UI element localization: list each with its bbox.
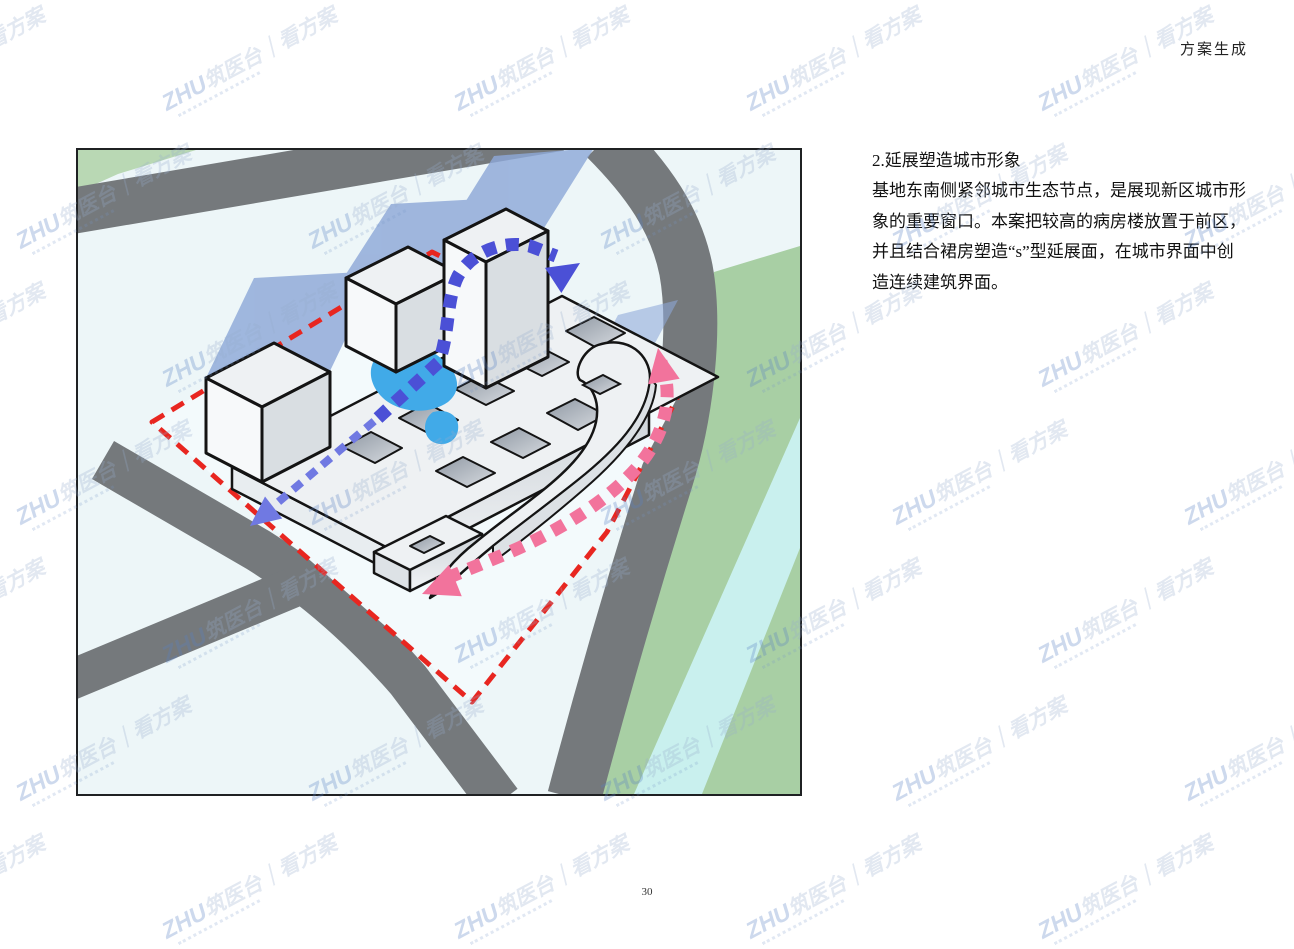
watermark: ZHU筑医台｜看方案 [158,0,367,121]
section-body: 基地东南侧紧邻城市生态节点，是展现新区城市形 象的重要窗口。本案把较高的病房楼放… [872,176,1257,298]
watermark: ZHU筑医台｜看方案 [1034,0,1243,121]
article-text-block: 2.延展塑造城市形象 基地东南侧紧邻城市生态节点，是展现新区城市形 象的重要窗口… [872,146,1257,298]
tower-right-tall [444,209,548,388]
site-diagram-svg [78,150,800,794]
watermark: ZHU筑医台｜看方案 [0,818,74,949]
watermark: ZHU筑医台｜看方案 [0,0,74,121]
watermark: ZHU筑医台｜看方案 [0,266,74,397]
watermark: ZHU筑医台｜看方案 [888,404,1097,535]
watermark: ZHU筑医台｜看方案 [742,0,951,121]
page-title: 方案生成 [1180,38,1248,59]
watermark: ZHU筑医台｜看方案 [1034,818,1243,949]
section-heading: 2.延展塑造城市形象 [872,146,1257,176]
watermark: ZHU筑医台｜看方案 [158,818,367,949]
watermark: ZHU筑医台｜看方案 [450,0,659,121]
watermark: ZHU筑医台｜看方案 [0,542,74,673]
watermark: ZHU筑医台｜看方案 [1180,404,1294,535]
watermark: ZHU筑医台｜看方案 [450,818,659,949]
page-number: 30 [0,886,1294,898]
watermark: ZHU筑医台｜看方案 [742,818,951,949]
watermark: ZHU筑医台｜看方案 [1034,542,1243,673]
watermark: ZHU筑医台｜看方案 [1180,680,1294,811]
site-diagram-figure [76,148,802,796]
watermark: ZHU筑医台｜看方案 [888,680,1097,811]
